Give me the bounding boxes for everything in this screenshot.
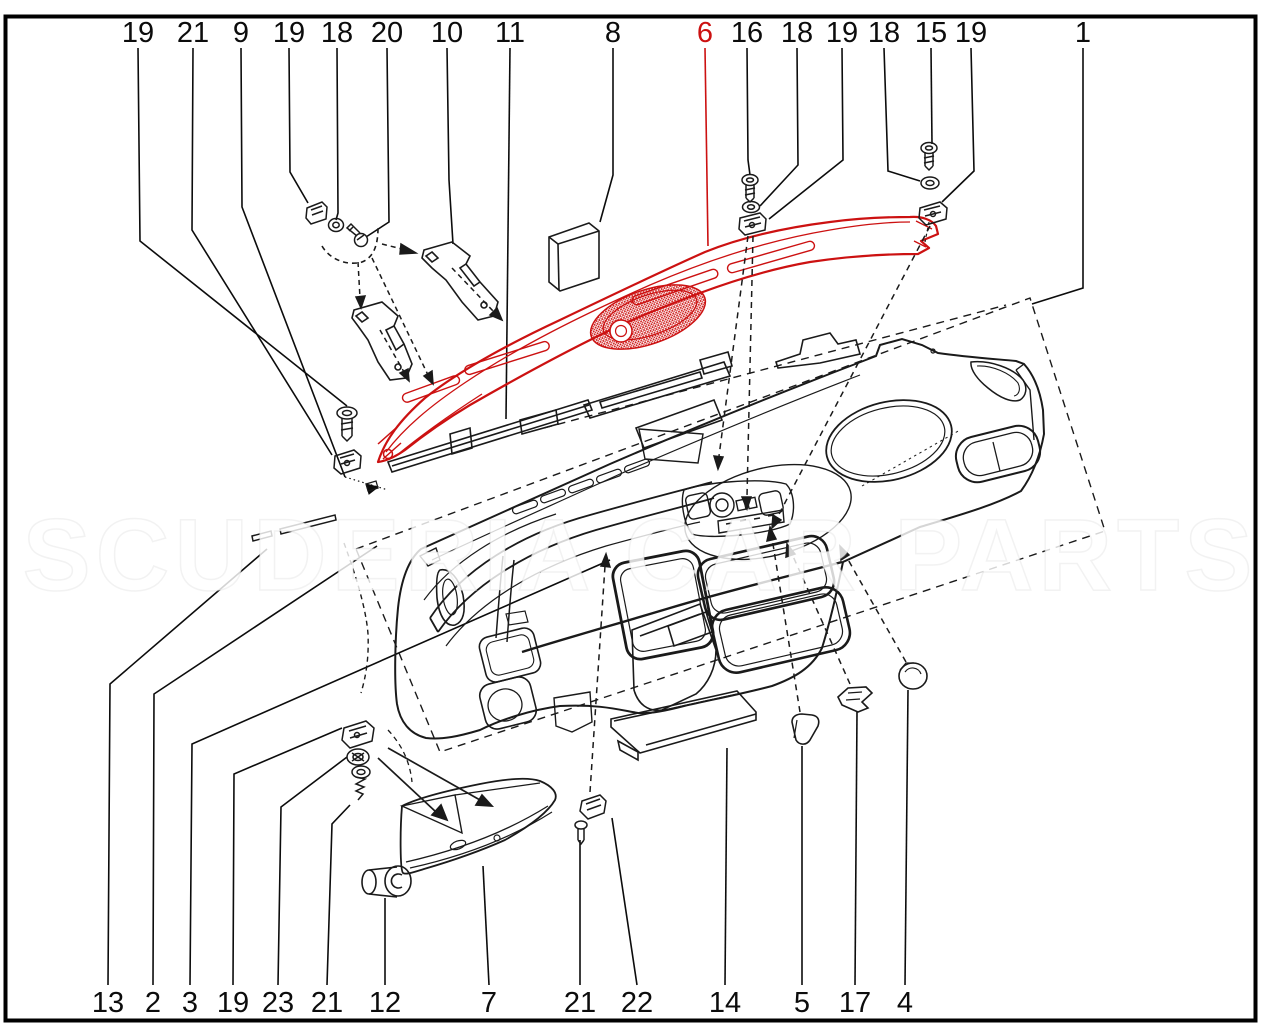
svg-text:21: 21 bbox=[177, 17, 209, 49]
svg-text:1: 1 bbox=[1075, 17, 1091, 49]
svg-text:6: 6 bbox=[697, 17, 713, 49]
svg-text:18: 18 bbox=[868, 17, 900, 49]
svg-text:23: 23 bbox=[262, 987, 294, 1019]
svg-text:2: 2 bbox=[145, 987, 161, 1019]
svg-text:18: 18 bbox=[781, 17, 813, 49]
svg-text:18: 18 bbox=[321, 17, 353, 49]
svg-text:21: 21 bbox=[564, 987, 596, 1019]
svg-text:13: 13 bbox=[92, 987, 124, 1019]
svg-text:19: 19 bbox=[273, 17, 305, 49]
svg-text:3: 3 bbox=[182, 987, 198, 1019]
svg-text:19: 19 bbox=[955, 17, 987, 49]
svg-text:9: 9 bbox=[233, 17, 249, 49]
svg-text:7: 7 bbox=[481, 987, 497, 1019]
svg-text:20: 20 bbox=[371, 17, 403, 49]
svg-text:14: 14 bbox=[709, 987, 741, 1019]
svg-text:17: 17 bbox=[839, 987, 871, 1019]
svg-text:19: 19 bbox=[826, 17, 858, 49]
svg-text:4: 4 bbox=[897, 987, 913, 1019]
svg-text:8: 8 bbox=[605, 17, 621, 49]
svg-text:16: 16 bbox=[731, 17, 763, 49]
svg-text:SCUDERIA CAR PARTS: SCUDERIA CAR PARTS bbox=[23, 498, 1258, 612]
svg-text:15: 15 bbox=[915, 17, 947, 49]
svg-text:10: 10 bbox=[431, 17, 463, 49]
svg-text:11: 11 bbox=[495, 17, 525, 49]
svg-text:5: 5 bbox=[794, 987, 810, 1019]
svg-text:19: 19 bbox=[122, 17, 154, 49]
svg-text:22: 22 bbox=[621, 987, 653, 1019]
svg-text:21: 21 bbox=[311, 987, 343, 1019]
svg-text:19: 19 bbox=[217, 987, 249, 1019]
svg-text:12: 12 bbox=[369, 987, 401, 1019]
